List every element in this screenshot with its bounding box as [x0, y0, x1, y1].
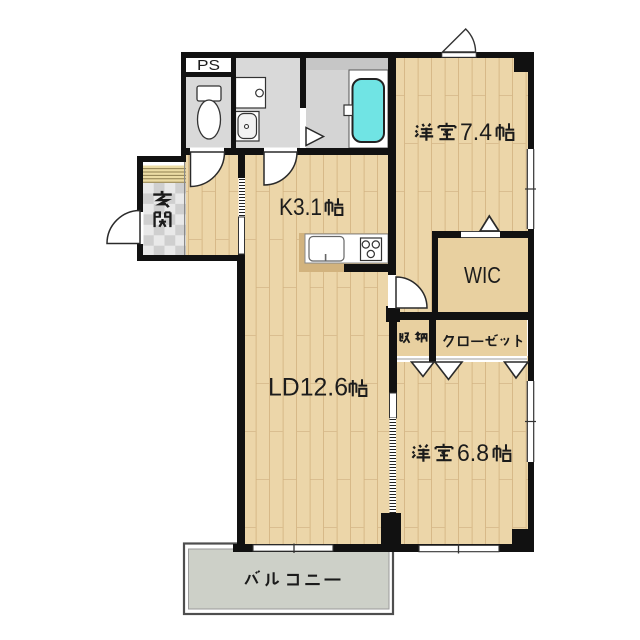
svg-text:K3.1: K3.1 — [279, 194, 322, 221]
svg-text:LD12.6: LD12.6 — [268, 374, 348, 402]
svg-text:WIC: WIC — [464, 262, 501, 288]
svg-text:7.4: 7.4 — [460, 119, 492, 146]
svg-text:PS: PS — [197, 57, 220, 74]
svg-text:6.8: 6.8 — [457, 440, 489, 467]
